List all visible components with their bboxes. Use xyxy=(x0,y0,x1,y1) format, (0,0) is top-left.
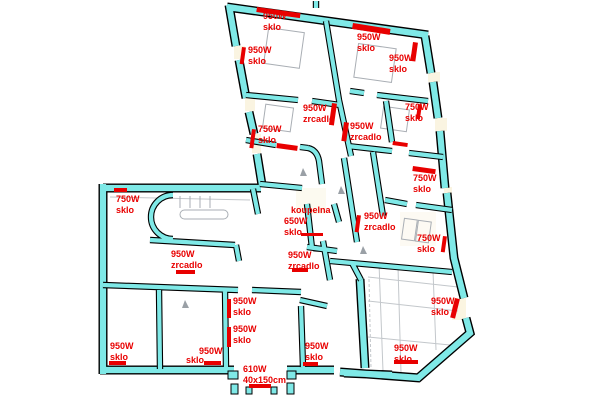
power-label: 650Wsklo xyxy=(284,216,308,238)
power-label: 950Wsklo xyxy=(305,341,329,363)
power-label: 950Wsklo xyxy=(357,32,381,54)
power-label: 610W40x150cm xyxy=(243,364,286,386)
power-label: 950Wzrcadlo xyxy=(350,121,382,143)
power-label: 750Wsklo xyxy=(258,124,282,146)
heater-marker xyxy=(227,299,231,318)
power-label: 950Wsklo xyxy=(248,45,272,67)
power-label: 750Wsklo xyxy=(413,173,437,195)
power-label: 950Wsklo xyxy=(263,11,287,33)
power-label: 950Wzrcadlo xyxy=(303,103,335,125)
heater-marker xyxy=(114,188,127,192)
power-label: 950Wzrcadlo xyxy=(171,249,203,271)
power-label: 750Wsklo xyxy=(417,233,441,255)
heater-marker xyxy=(227,327,231,347)
power-label: 750Wsklo xyxy=(116,194,140,216)
power-label: 950Wsklo xyxy=(110,341,134,363)
power-label: 950Wzrcadlo xyxy=(288,250,320,272)
heater-marker xyxy=(204,361,221,365)
power-label: 950Wsklo xyxy=(431,296,455,318)
floorplan-page: 950Wsklo950Wsklo950Wsklo950Wsklo950Wzrca… xyxy=(0,0,600,400)
power-label: 750Wsklo xyxy=(405,102,429,124)
power-label: 950Wzrcadlo xyxy=(364,211,396,233)
power-label: 950Wsklo xyxy=(389,53,413,75)
power-label: 950Wsklo xyxy=(233,296,257,318)
power-label: 950Wsklo xyxy=(233,324,257,346)
power-label: sklo xyxy=(186,355,204,366)
floorplan-drawing xyxy=(0,0,600,400)
power-label: 950Wsklo xyxy=(394,343,418,365)
power-label: koupelna xyxy=(291,205,331,216)
